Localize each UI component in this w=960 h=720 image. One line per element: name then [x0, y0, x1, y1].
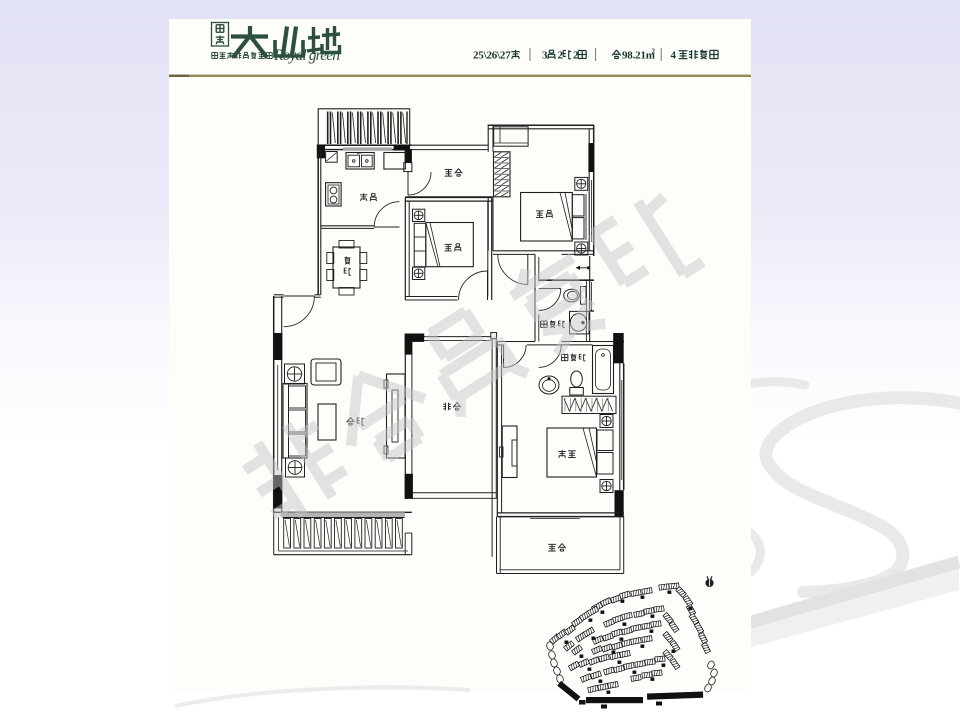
- svg-text:4: 4: [671, 50, 677, 62]
- svg-text:25\26\27: 25\26\27: [473, 50, 511, 62]
- svg-text:Royal green: Royal green: [273, 47, 340, 64]
- svg-text:3: 3: [542, 50, 548, 62]
- svg-text:98.21m: 98.21m: [622, 50, 655, 62]
- svg-text:2: 2: [558, 50, 564, 62]
- svg-text:2: 2: [652, 48, 656, 56]
